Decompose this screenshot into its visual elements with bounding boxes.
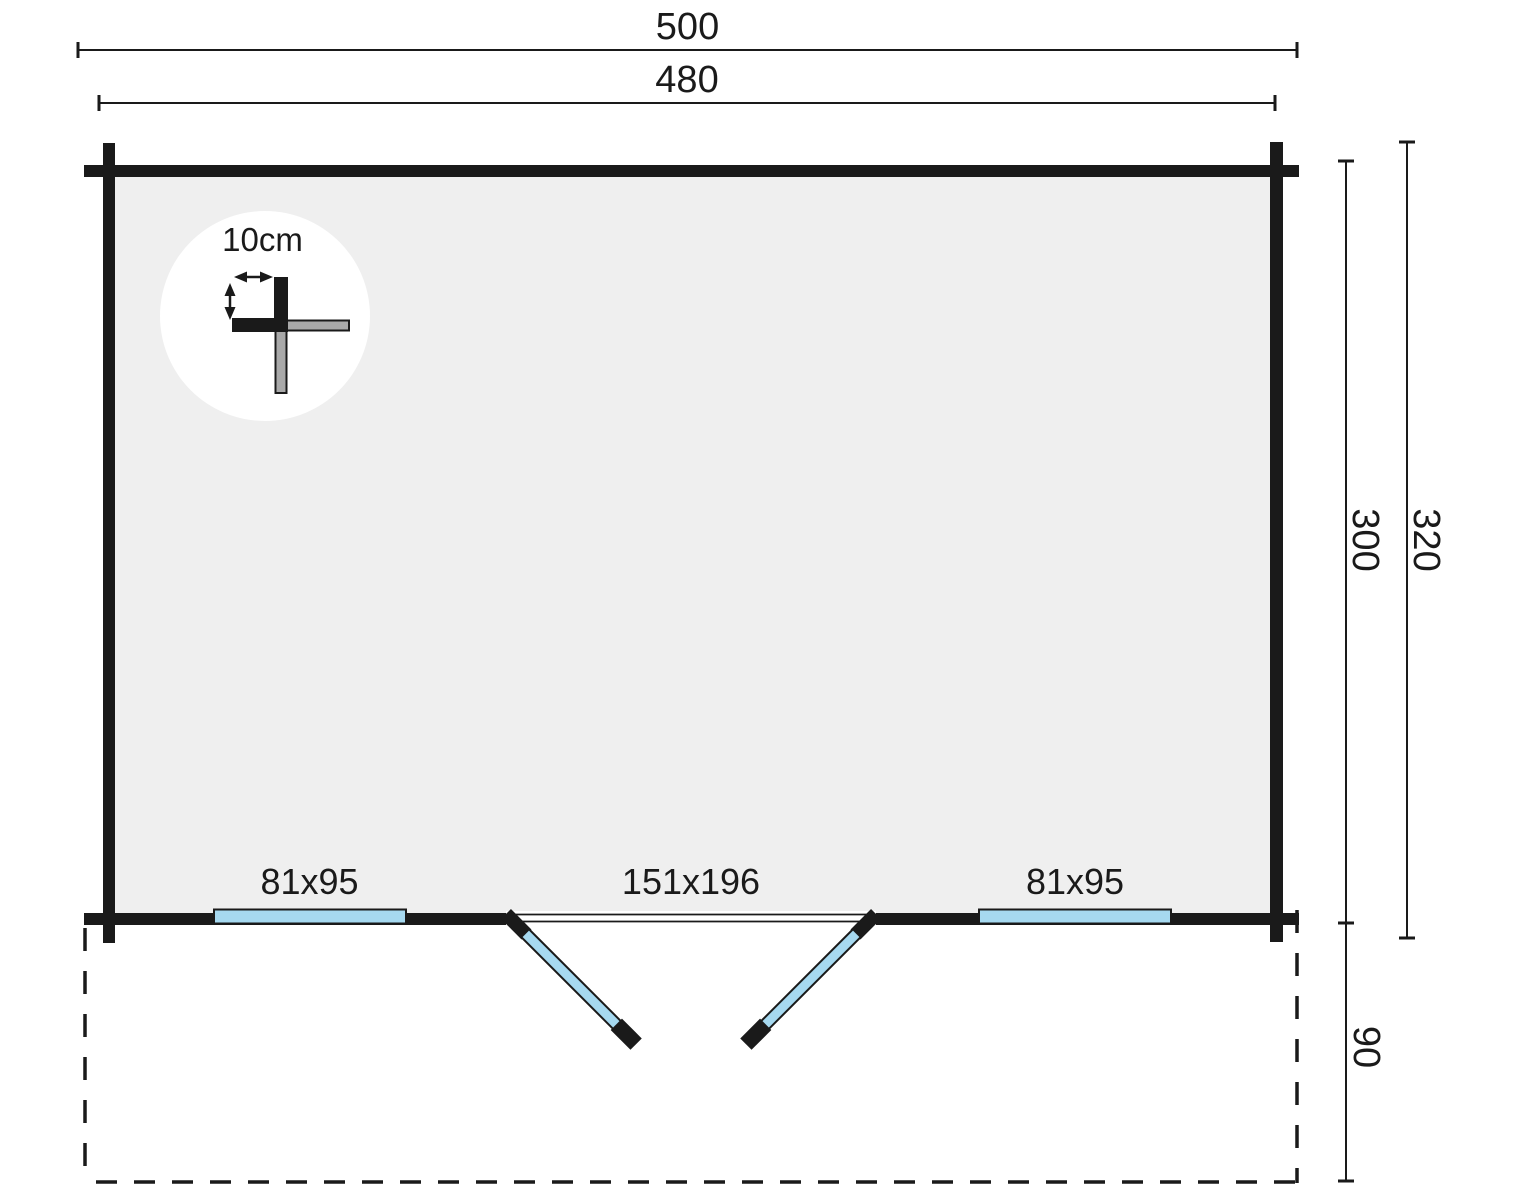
wall-top — [84, 165, 1299, 177]
window-right — [979, 910, 1171, 924]
detail-log-black-horizontal — [232, 318, 288, 332]
plan-drawing — [0, 0, 1530, 1188]
window-right-size-label: 81x95 — [978, 862, 1172, 902]
detail-log-gray-horizontal — [286, 321, 349, 331]
floor-plan-diagram: 500 480 300 320 90 10cm 81x95 151x196 81… — [0, 0, 1530, 1188]
door-leaf-left — [500, 908, 641, 1049]
dim-label-overall-width: 500 — [78, 7, 1297, 47]
window-left — [214, 910, 406, 924]
door-panel-right — [760, 929, 860, 1029]
dim-label-porch-depth: 90 — [1346, 1007, 1386, 1087]
door-leaf-right — [740, 908, 881, 1049]
window-left-size-label: 81x95 — [213, 862, 406, 902]
detail-log-gray-vertical — [276, 330, 287, 393]
wall-left — [103, 143, 115, 943]
wall-right — [1270, 142, 1283, 942]
dim-label-inner-depth: 300 — [1345, 500, 1385, 580]
door-opening — [506, 911, 876, 927]
dim-label-overall-depth: 320 — [1406, 500, 1446, 580]
door-size-label: 151x196 — [505, 862, 877, 902]
door-panel-left — [521, 929, 621, 1029]
detail-label-log-thickness: 10cm — [205, 222, 320, 258]
dim-label-shell-width: 480 — [99, 60, 1275, 100]
